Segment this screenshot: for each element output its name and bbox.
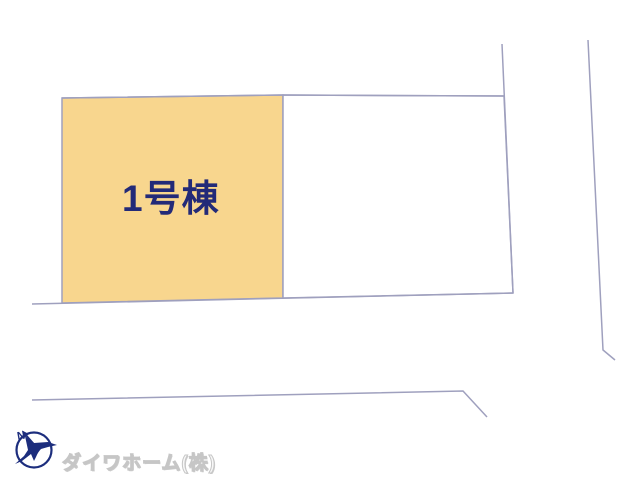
road-edge-lower-line [32,391,487,417]
parcel-2-shape [283,95,513,298]
company-name-watermark: ダイワホーム(株) [62,448,216,475]
compass-north-label: N [16,430,26,443]
compass-icon-svg: N [12,426,60,474]
compass-icon: N [12,426,60,474]
building-1-label: 1号棟 [122,180,232,217]
parcel-map-svg [0,0,640,480]
far-east-boundary-line [588,40,615,360]
plot-map-canvas: 1号棟 N ダイワホーム(株) [0,0,640,480]
